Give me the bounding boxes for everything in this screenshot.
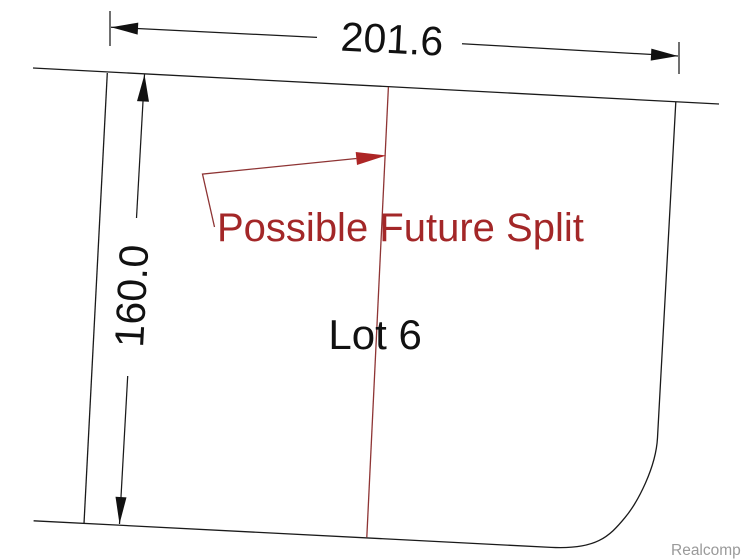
svg-text:Lot 6: Lot 6 (328, 311, 421, 358)
svg-text:160.0: 160.0 (106, 244, 157, 349)
svg-text:Possible Future Split: Possible Future Split (217, 206, 584, 250)
svg-text:201.6: 201.6 (340, 13, 445, 64)
svg-text:Realcomp: Realcomp (671, 542, 741, 559)
